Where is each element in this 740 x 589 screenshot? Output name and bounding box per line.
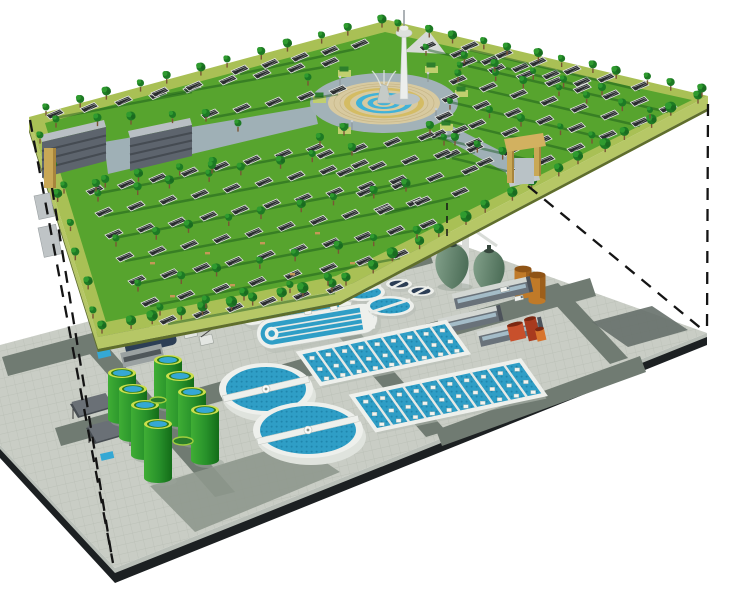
- tree-canopy-light: [97, 321, 103, 327]
- tree-trunk: [243, 296, 244, 301]
- tree-trunk: [538, 57, 539, 62]
- sludge-tank-water: [183, 389, 201, 395]
- tree-canopy-light: [461, 51, 465, 55]
- basin-gate-box: [490, 387, 495, 390]
- tree-trunk: [495, 77, 496, 82]
- gate-post-shade: [512, 150, 514, 183]
- park-gate-left: [44, 148, 56, 188]
- tree-trunk: [464, 59, 465, 64]
- tree-trunk: [670, 86, 671, 91]
- tree-canopy-light: [554, 164, 560, 170]
- tree-trunk: [106, 95, 107, 100]
- tree-trunk: [159, 311, 160, 316]
- tree-canopy-light: [205, 170, 209, 174]
- tree-canopy-deep: [406, 182, 411, 187]
- tree-trunk: [558, 172, 559, 177]
- tree-trunk: [647, 80, 648, 85]
- park-bench: [170, 295, 175, 297]
- basin-gate-box: [363, 400, 368, 403]
- tree-canopy-light: [162, 71, 167, 76]
- tree-canopy-light: [309, 150, 313, 154]
- tree-canopy-deep: [338, 244, 343, 249]
- tree-trunk: [327, 281, 328, 286]
- basin-gate-box: [358, 346, 363, 349]
- tree-canopy-light: [89, 306, 93, 310]
- tree-canopy-light: [413, 226, 418, 231]
- layered-facility-illustration: [0, 0, 740, 589]
- sludge-tank-body: [191, 410, 219, 465]
- tree-trunk: [345, 281, 346, 286]
- tree-trunk: [533, 75, 534, 80]
- tree-trunk: [97, 122, 98, 127]
- tree-trunk: [172, 119, 173, 124]
- tree-canopy-light: [276, 156, 282, 162]
- tree-trunk: [373, 194, 374, 199]
- tree-trunk: [489, 114, 490, 119]
- tree-canopy-light: [276, 288, 282, 294]
- tree-canopy-light: [102, 87, 108, 93]
- tree-canopy-light: [83, 277, 89, 283]
- tree-canopy-deep: [453, 33, 458, 38]
- tree-trunk: [63, 189, 64, 194]
- tree-canopy-light: [503, 43, 508, 48]
- tree-canopy-light: [202, 109, 207, 114]
- hedge-shrub: [427, 63, 436, 68]
- tree-trunk: [92, 314, 93, 319]
- tree-canopy-light: [644, 73, 648, 77]
- tree-canopy-deep: [244, 291, 249, 296]
- basin-gate-box: [383, 354, 388, 357]
- basin-gate-box: [324, 377, 329, 380]
- tree-trunk: [115, 242, 116, 247]
- tree-canopy-light: [451, 133, 456, 138]
- tree-trunk: [179, 171, 180, 176]
- tree-canopy-light: [454, 69, 458, 73]
- tree-trunk: [138, 177, 139, 182]
- basin-gate-box: [498, 371, 503, 374]
- tree-canopy-light: [318, 31, 322, 35]
- basin-gate-box: [432, 343, 437, 346]
- tree-canopy-light: [620, 127, 626, 133]
- tree-canopy-light: [697, 84, 703, 90]
- sludge-tank-body: [144, 424, 172, 483]
- orange-tank-base: [529, 298, 546, 305]
- basin-gate-box: [334, 364, 339, 367]
- basin-gate-box: [497, 398, 502, 401]
- tree-canopy-light: [257, 47, 262, 52]
- tree-trunk: [79, 103, 80, 108]
- tree-canopy-light: [369, 186, 374, 191]
- tree-canopy-light: [137, 79, 141, 83]
- tree-canopy-deep: [253, 296, 258, 301]
- tree-canopy-light: [370, 234, 374, 238]
- tree-trunk: [429, 129, 430, 134]
- tree-canopy-light: [588, 131, 592, 135]
- basin-gate-box: [447, 382, 452, 385]
- gate-pillar-shade: [53, 148, 56, 188]
- tree-canopy-light: [324, 273, 329, 278]
- basin-gate-box: [342, 349, 347, 352]
- tree-canopy-light: [480, 200, 486, 206]
- tree-canopy-deep: [702, 87, 707, 92]
- tree-trunk: [319, 141, 320, 146]
- projection-dashed-line: [707, 104, 708, 330]
- basin-gate-box: [531, 390, 536, 393]
- tree-canopy-light: [666, 78, 671, 83]
- tree-canopy-light: [71, 248, 76, 253]
- basin-gate-box: [389, 363, 394, 366]
- tree-canopy-light: [447, 98, 451, 102]
- tree-canopy-light: [197, 302, 203, 308]
- clarifier: [253, 402, 366, 465]
- basin-gate-box: [507, 384, 512, 387]
- tree-trunk: [312, 158, 313, 163]
- tree-canopy-light: [165, 176, 171, 182]
- tree-trunk: [260, 215, 261, 220]
- tree-trunk: [240, 171, 241, 176]
- tree-trunk: [216, 272, 217, 277]
- sludge-tank-water: [136, 402, 154, 408]
- tree-trunk: [520, 122, 521, 127]
- tree-canopy-light: [441, 134, 445, 138]
- tree-trunk: [601, 91, 602, 96]
- tree-canopy-light: [93, 114, 98, 119]
- tree-trunk: [485, 208, 486, 213]
- tree-canopy-light: [42, 103, 46, 107]
- basin-gate-box: [481, 375, 486, 378]
- basin-gate-box: [318, 367, 323, 370]
- tree-canopy-deep: [169, 178, 174, 183]
- clarifier-hub-center: [265, 388, 268, 391]
- tree-canopy-light: [387, 248, 394, 255]
- tree-trunk: [561, 62, 562, 67]
- tree-canopy-deep: [346, 276, 351, 281]
- tree-canopy-deep: [131, 319, 136, 324]
- basin-gate-box: [423, 402, 428, 405]
- tree-trunk: [140, 87, 141, 92]
- tree-trunk: [287, 47, 288, 52]
- tree-trunk: [351, 151, 352, 156]
- basin-gate-box: [397, 393, 402, 396]
- tree-canopy-light: [67, 219, 71, 223]
- tree-canopy-light: [530, 68, 534, 72]
- tree-trunk: [169, 184, 170, 189]
- tree-trunk: [205, 117, 206, 122]
- basin-gate-box: [422, 356, 427, 359]
- tree-canopy-deep: [578, 154, 583, 159]
- tree-trunk: [343, 131, 344, 136]
- tree-trunk: [261, 55, 262, 60]
- tree-canopy-light: [134, 169, 140, 175]
- tree-trunk: [289, 289, 290, 294]
- basin-gate-box: [414, 389, 419, 392]
- tree-canopy-light: [156, 303, 160, 307]
- tree-trunk: [237, 127, 238, 132]
- basin-gate-box: [396, 419, 401, 422]
- tree-canopy-light: [239, 288, 245, 294]
- tree-canopy-light: [557, 123, 561, 127]
- basin-gate-box: [440, 329, 445, 332]
- tree-canopy-deep: [131, 115, 136, 120]
- tree-canopy-light: [492, 69, 496, 73]
- tree-canopy-light: [589, 60, 594, 65]
- tree-canopy-light: [177, 307, 183, 313]
- sludge-tank-water: [113, 370, 131, 376]
- basin-gate-box: [415, 347, 420, 350]
- tree-trunk: [586, 99, 587, 104]
- tree-canopy-deep: [58, 192, 63, 197]
- tree-trunk: [70, 227, 71, 232]
- tree-canopy-light: [134, 279, 138, 283]
- tree-trunk: [560, 131, 561, 136]
- tree-canopy-deep: [373, 263, 378, 268]
- tree-trunk: [454, 141, 455, 146]
- tree-trunk: [429, 33, 430, 38]
- tree-trunk: [105, 183, 106, 188]
- tree-trunk: [211, 169, 212, 174]
- tree-trunk: [294, 257, 295, 262]
- tree-trunk: [333, 201, 334, 206]
- orange-tank-top: [515, 266, 532, 273]
- tree-canopy-light: [448, 31, 454, 37]
- tree-canopy-light: [202, 296, 207, 301]
- tree-canopy-deep: [420, 239, 425, 244]
- tree-canopy-light: [344, 23, 349, 28]
- basin-gate-box: [430, 412, 435, 415]
- tree-trunk: [181, 315, 182, 320]
- tree-trunk: [591, 139, 592, 144]
- tree-canopy-light: [169, 111, 173, 115]
- tower-cap: [400, 25, 409, 30]
- tree-trunk: [523, 84, 524, 89]
- basin-gate-box: [310, 356, 315, 359]
- tree-trunk: [208, 177, 209, 182]
- tree-canopy-light: [340, 123, 345, 128]
- lamp-head: [435, 108, 438, 111]
- tree-trunk: [307, 81, 308, 86]
- tree-trunk: [701, 92, 702, 97]
- tree-canopy-light: [519, 76, 524, 81]
- tree-canopy-light: [486, 106, 490, 110]
- tree-trunk: [558, 92, 559, 97]
- basin-gate-box: [326, 353, 331, 356]
- tree-canopy-light: [208, 161, 213, 166]
- tree-canopy-light: [560, 75, 564, 79]
- tree-canopy-deep: [559, 166, 564, 171]
- basin-gate-box: [464, 379, 469, 382]
- tree-trunk: [87, 285, 88, 290]
- tree-trunk: [321, 39, 322, 44]
- sludge-tank-water: [124, 386, 142, 392]
- basin-gate-box: [399, 350, 404, 353]
- tree-trunk: [419, 245, 420, 250]
- tree-canopy-light: [52, 115, 56, 119]
- tree-trunk: [381, 23, 382, 28]
- tree-canopy-deep: [466, 214, 472, 220]
- tree-canopy-deep: [538, 51, 543, 56]
- park-bench: [315, 232, 320, 234]
- basin-gate-box: [380, 396, 385, 399]
- tree-trunk: [226, 63, 227, 68]
- tree-canopy-light: [611, 66, 617, 72]
- tree-canopy-light: [665, 102, 672, 109]
- tree-canopy-light: [226, 297, 233, 304]
- basin-gate-box: [379, 423, 384, 426]
- tree-canopy-deep: [485, 203, 490, 208]
- tree-trunk: [101, 329, 102, 334]
- tree-trunk: [280, 164, 281, 169]
- tree-trunk: [181, 279, 182, 284]
- tree-canopy-deep: [439, 227, 444, 232]
- tree-trunk: [425, 51, 426, 56]
- tree-canopy-light: [693, 91, 699, 97]
- tree-canopy-light: [598, 83, 603, 88]
- tree-trunk: [338, 249, 339, 254]
- tree-trunk: [301, 208, 302, 213]
- tree-canopy-light: [60, 181, 64, 185]
- tree-canopy-light: [126, 112, 132, 118]
- park-bench: [230, 284, 235, 286]
- tree-trunk: [205, 304, 206, 309]
- tree-trunk: [449, 105, 450, 110]
- ground-disc: [150, 397, 166, 403]
- park-bench: [205, 252, 210, 254]
- basin-gate-box: [389, 409, 394, 412]
- tree-canopy-deep: [287, 42, 292, 47]
- orange-tank-shade: [540, 275, 546, 301]
- park-bench: [350, 262, 355, 264]
- tree-canopy-deep: [624, 130, 629, 135]
- tree-trunk: [228, 221, 229, 226]
- park-bench: [290, 273, 295, 275]
- basin-gate-box: [372, 412, 377, 415]
- tree-canopy-light: [534, 48, 540, 54]
- tree-canopy-light: [297, 283, 304, 290]
- tree-trunk: [592, 68, 593, 73]
- tree-trunk: [252, 301, 253, 306]
- basin-gate-box: [406, 405, 411, 408]
- basin-gate-box: [514, 394, 519, 397]
- tree-canopy-light: [286, 281, 290, 285]
- basin-gate-box: [455, 349, 460, 352]
- basin-gate-box: [473, 391, 478, 394]
- tree-trunk: [416, 234, 417, 239]
- lamp-head: [351, 120, 354, 123]
- tree-canopy-light: [101, 175, 106, 180]
- tree-canopy-light: [507, 187, 513, 193]
- tree-canopy-deep: [201, 66, 206, 71]
- tree-canopy-light: [152, 227, 157, 232]
- basin-gate-box: [480, 401, 485, 404]
- ground-disc: [173, 437, 193, 445]
- basin-gate-box: [373, 366, 378, 369]
- tree-canopy-light: [558, 55, 562, 59]
- tree-canopy-light: [177, 271, 182, 276]
- basin-gate-box: [439, 398, 444, 401]
- tree-trunk: [563, 83, 564, 88]
- tree-trunk: [697, 99, 698, 104]
- tree-canopy-deep: [102, 324, 107, 329]
- tree-trunk: [39, 139, 40, 144]
- tree-canopy-light: [296, 199, 302, 205]
- tree-canopy-light: [368, 260, 374, 266]
- park-bench: [150, 262, 155, 264]
- tree-canopy-light: [573, 151, 579, 157]
- tree-canopy-light: [433, 224, 439, 230]
- tree-canopy-light: [491, 59, 496, 64]
- basin-gate-box: [366, 357, 371, 360]
- hedge-shrub: [340, 67, 349, 72]
- tree-trunk: [624, 135, 625, 140]
- tree-trunk: [615, 74, 616, 79]
- tree-canopy-light: [394, 19, 398, 23]
- tree-canopy-light: [257, 207, 262, 212]
- tree-canopy-deep: [671, 105, 677, 111]
- park-gate-right: [504, 133, 546, 187]
- tree-trunk: [506, 51, 507, 56]
- lamp-head: [427, 72, 430, 75]
- tree-canopy-light: [304, 73, 308, 77]
- tree-canopy-deep: [382, 18, 387, 23]
- tree-canopy-deep: [181, 310, 186, 315]
- tree-trunk: [137, 287, 138, 292]
- tree-canopy-deep: [88, 279, 93, 284]
- tree-trunk: [97, 197, 98, 202]
- basin-gate-box: [431, 386, 436, 389]
- tree-canopy-light: [348, 143, 353, 148]
- clarifier-hub-center: [307, 429, 310, 432]
- tree-canopy-light: [647, 107, 651, 111]
- tree-trunk: [452, 39, 453, 44]
- tree-trunk: [130, 120, 131, 125]
- lamp-head: [339, 76, 342, 79]
- basin-gate-box: [350, 361, 355, 364]
- tree-canopy-light: [223, 55, 227, 59]
- tree-trunk: [347, 31, 348, 36]
- tree-trunk: [457, 77, 458, 82]
- tree-trunk: [57, 197, 58, 202]
- tree-canopy-light: [474, 140, 478, 144]
- basin-gate-box: [391, 339, 396, 342]
- basin-gate-box: [438, 353, 443, 356]
- park-bench: [260, 242, 265, 244]
- tree-canopy-light: [423, 44, 427, 48]
- tree-canopy-light: [196, 63, 202, 69]
- basin-gate-box: [424, 332, 429, 335]
- tree-canopy-light: [618, 99, 623, 104]
- basin-gate-box: [524, 380, 529, 383]
- tree-canopy-light: [283, 39, 289, 45]
- tree-canopy-light: [460, 211, 467, 218]
- tree-canopy-light: [184, 220, 190, 226]
- tree-trunk: [200, 71, 201, 76]
- tree-canopy-deep: [152, 314, 158, 320]
- tree-canopy-light: [341, 273, 347, 279]
- tree-canopy-light: [112, 234, 116, 238]
- tree-canopy-light: [377, 15, 383, 21]
- basin-gate-box: [357, 370, 362, 373]
- tree-trunk: [622, 107, 623, 112]
- tree-canopy-deep: [282, 291, 287, 296]
- tree-canopy-deep: [392, 251, 398, 256]
- basin-gate-box: [447, 408, 452, 411]
- tree-canopy-light: [425, 25, 430, 30]
- tree-canopy-light: [76, 95, 81, 100]
- tree-canopy-light: [401, 179, 407, 185]
- tree-trunk: [405, 187, 406, 192]
- basin-gate-box: [413, 415, 418, 418]
- tree-canopy-deep: [139, 172, 144, 177]
